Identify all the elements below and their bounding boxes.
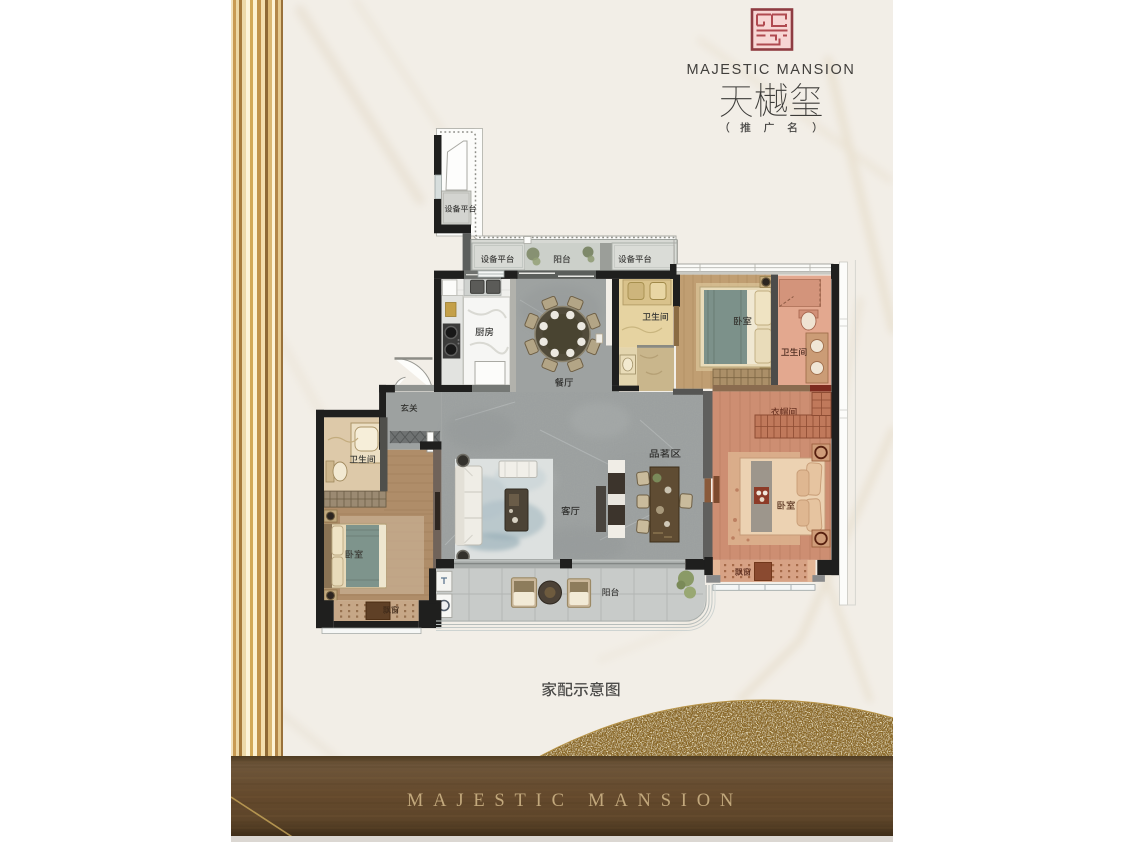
svg-text:MAJESTIC MANSION: MAJESTIC MANSION — [407, 791, 743, 811]
svg-text:MAJESTIC MANSION: MAJESTIC MANSION — [687, 62, 856, 78]
